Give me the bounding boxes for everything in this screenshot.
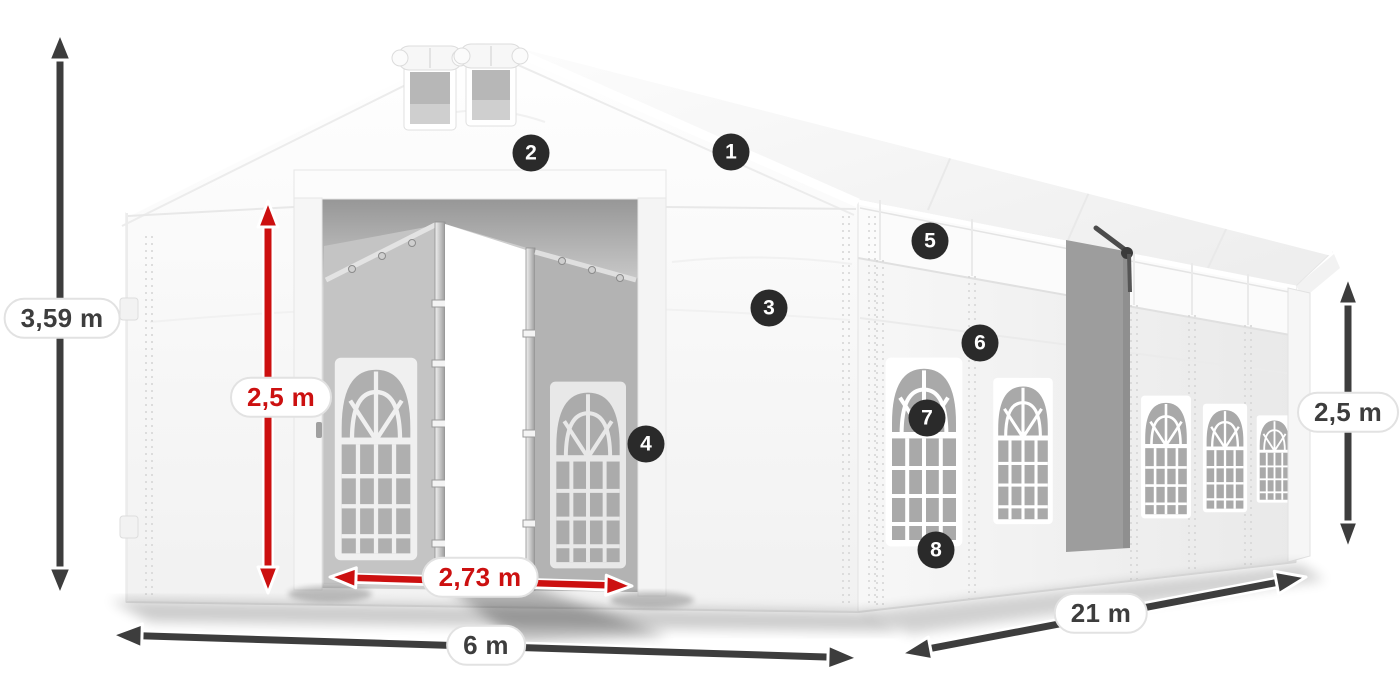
tent-dimension-diagram: 3,59 m 2,5 m 2,73 m 6 m 21 m 2,5 m 1 2 3… (0, 0, 1400, 700)
callout-badge-8[interactable]: 8 (918, 532, 955, 569)
strap-buckle (120, 298, 138, 320)
callout-badge-4[interactable]: 4 (628, 426, 665, 463)
dimension-label-door-width: 2,73 m (422, 557, 539, 598)
dimension-label-side-wall-height: 2,5 m (1297, 392, 1399, 433)
side-window-2 (993, 378, 1053, 524)
arrowhead-down-icon (1338, 522, 1358, 549)
arrowhead-left-icon (901, 637, 933, 660)
arrowhead-right-icon (828, 645, 858, 669)
dimension-label-total-height: 3,59 m (4, 298, 121, 339)
dimension-label-front-width: 6 m (446, 625, 526, 666)
arrowhead-up-icon (1338, 277, 1358, 304)
arrowhead-left-icon (112, 624, 142, 648)
callout-badge-1[interactable]: 1 (713, 134, 750, 171)
side-door-opening (1066, 228, 1133, 552)
door-jamb-right (638, 198, 666, 596)
door-header-beam (294, 170, 666, 199)
arrowhead-down-icon (49, 568, 71, 595)
callout-badge-6[interactable]: 6 (962, 325, 999, 362)
left-door-panel (324, 224, 437, 586)
arrowhead-up-icon (49, 33, 71, 60)
callout-badge-5[interactable]: 5 (912, 223, 949, 260)
side-window-1 (886, 358, 963, 547)
callout-badge-2[interactable]: 2 (513, 135, 550, 172)
dimension-label-door-height: 2,5 m (230, 377, 332, 418)
right-door-panel (535, 250, 638, 592)
side-window-5 (1257, 415, 1293, 502)
callout-badge-7[interactable]: 7 (909, 400, 946, 437)
side-window-3 (1141, 396, 1191, 519)
tent-illustration (0, 0, 1400, 700)
side-window-4 (1203, 404, 1247, 513)
door-handle (316, 422, 322, 438)
front-opening (294, 170, 666, 596)
callout-badge-3[interactable]: 3 (751, 290, 788, 327)
strap-buckle (120, 516, 138, 538)
open-passage (445, 224, 526, 588)
dimension-label-side-length: 21 m (1054, 593, 1148, 634)
